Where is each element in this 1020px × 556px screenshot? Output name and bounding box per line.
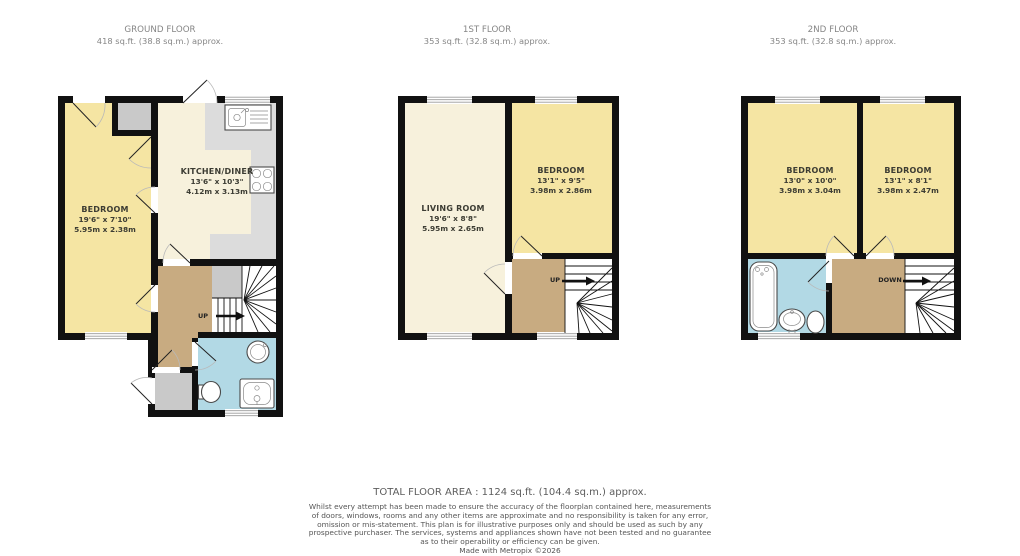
floor-area: 353 sq.ft. (32.8 sq.m.) approx.: [424, 36, 550, 47]
room-dims-imperial: 13'0" x 10'0": [779, 176, 841, 186]
ground-floor-plan: [55, 75, 290, 425]
stair-label-ground: UP: [198, 312, 208, 320]
room-label-first-bedroom: BEDROOM 13'1" x 9'5" 3.98m x 2.86m: [530, 166, 592, 195]
room-name: BEDROOM: [877, 166, 939, 176]
floor-header-second: 2ND FLOOR 353 sq.ft. (32.8 sq.m.) approx…: [770, 25, 896, 46]
floorplan-canvas: GROUND FLOOR 418 sq.ft. (38.8 sq.m.) app…: [0, 0, 1020, 556]
sink-fixture: [225, 105, 271, 130]
room-label-ground-bedroom: BEDROOM 19'6" x 7'10" 5.95m x 2.38m: [74, 205, 136, 234]
room-dims-imperial: 19'6" x 8'8": [421, 214, 484, 224]
room-name: BEDROOM: [530, 166, 592, 176]
room-dims-metric: 3.98m x 2.47m: [877, 186, 939, 196]
room-label-kitchen-diner: KITCHEN/DINER 13'6" x 10'3" 4.12m x 3.13…: [181, 167, 254, 196]
room-name: BEDROOM: [74, 205, 136, 215]
floor-title: GROUND FLOOR: [97, 25, 223, 36]
room-label-second-bedroom-right: BEDROOM 13'1" x 8'1" 3.98m x 2.47m: [877, 166, 939, 195]
floor-header-ground: GROUND FLOOR 418 sq.ft. (38.8 sq.m.) app…: [97, 25, 223, 46]
basin-fixture: [247, 341, 269, 363]
toilet-fixture: [807, 311, 824, 333]
floor-area: 418 sq.ft. (38.8 sq.m.) approx.: [97, 36, 223, 47]
room-label-living-room: LIVING ROOM 19'6" x 8'8" 5.95m x 2.65m: [421, 204, 484, 233]
room-dims-imperial: 13'6" x 10'3": [181, 177, 254, 187]
room-label-second-bedroom-left: BEDROOM 13'0" x 10'0" 3.98m x 3.04m: [779, 166, 841, 195]
bathtub-fixture: [750, 262, 777, 331]
footer: TOTAL FLOOR AREA : 1124 sq.ft. (104.4 sq…: [0, 487, 1020, 556]
floor-header-first: 1ST FLOOR 353 sq.ft. (32.8 sq.m.) approx…: [424, 25, 550, 46]
room-dims-metric: 4.12m x 3.13m: [181, 187, 254, 197]
floor-area: 353 sq.ft. (32.8 sq.m.) approx.: [770, 36, 896, 47]
room-dims-imperial: 13'1" x 8'1": [877, 176, 939, 186]
room-dims-imperial: 13'1" x 9'5": [530, 176, 592, 186]
room-dims-metric: 3.98m x 3.04m: [779, 186, 841, 196]
second-floor-plan: [735, 90, 965, 350]
ground-rooms: [64, 103, 276, 410]
stair-label-second: DOWN: [878, 276, 902, 284]
room-name: KITCHEN/DINER: [181, 167, 254, 177]
stair-label-first: UP: [550, 276, 560, 284]
room-name: LIVING ROOM: [421, 204, 484, 214]
room-name: BEDROOM: [779, 166, 841, 176]
room-dims-imperial: 19'6" x 7'10": [74, 215, 136, 225]
room-dims-metric: 3.98m x 2.86m: [530, 186, 592, 196]
floor-title: 1ST FLOOR: [424, 25, 550, 36]
toilet-fixture: [199, 382, 221, 403]
credit: Made with Metropix ©2026: [0, 547, 1020, 556]
room-dims-metric: 5.95m x 2.38m: [74, 225, 136, 235]
floor-title: 2ND FLOOR: [770, 25, 896, 36]
room-dims-metric: 5.95m x 2.65m: [421, 224, 484, 234]
shower-fixture: [240, 379, 274, 408]
total-floor-area: TOTAL FLOOR AREA : 1124 sq.ft. (104.4 sq…: [0, 487, 1020, 498]
hob-fixture: [250, 167, 274, 193]
